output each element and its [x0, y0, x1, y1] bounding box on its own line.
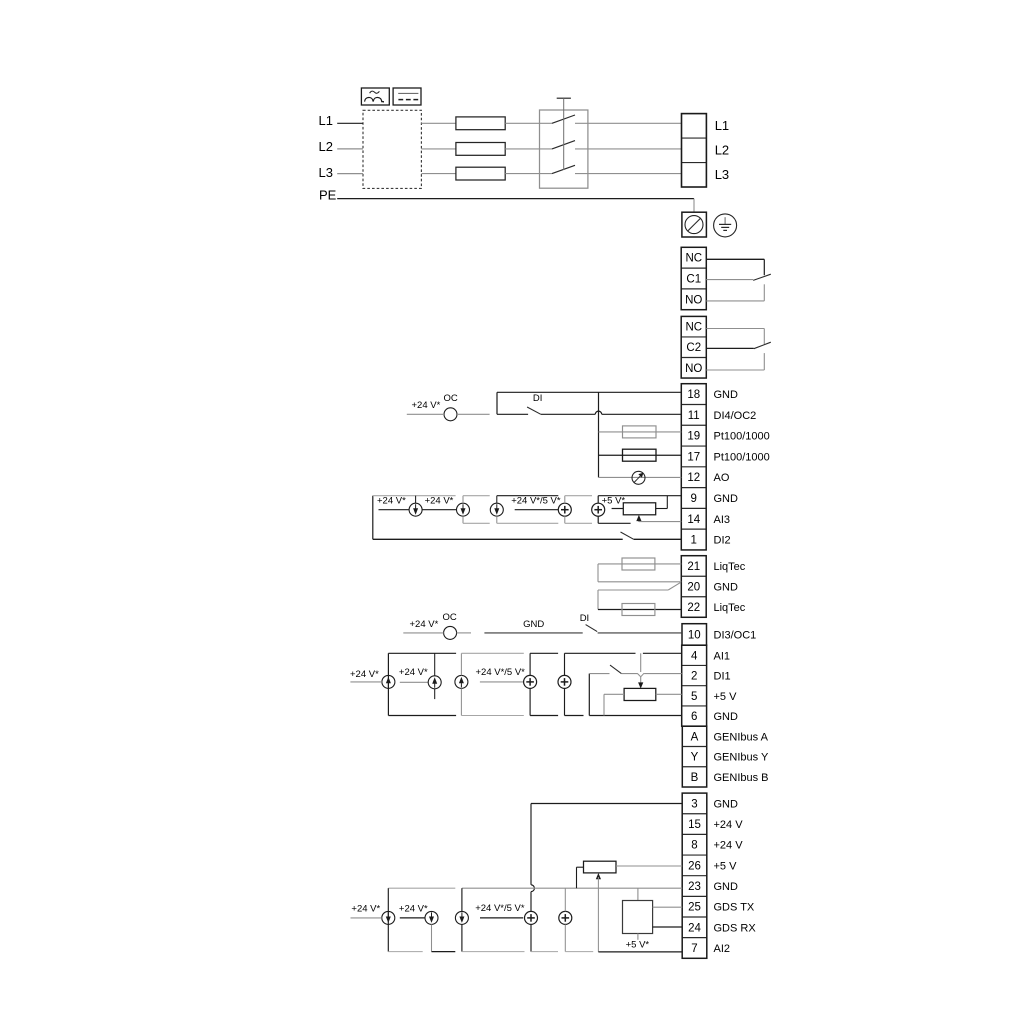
svg-text:AI1: AI1	[714, 650, 731, 662]
svg-text:L3: L3	[715, 167, 729, 182]
svg-text:11: 11	[688, 410, 700, 422]
svg-text:+5 V*: +5 V*	[626, 939, 650, 950]
svg-text:5: 5	[691, 691, 697, 703]
svg-text:DI4/OC2: DI4/OC2	[714, 410, 757, 422]
svg-text:C1: C1	[686, 274, 701, 286]
svg-text:GND: GND	[714, 798, 739, 810]
svg-text:L2: L2	[715, 142, 729, 157]
svg-text:GENIbus Y: GENIbus Y	[714, 752, 769, 764]
svg-text:GND: GND	[714, 389, 739, 401]
svg-text:+24 V*/5 V*: +24 V*/5 V*	[476, 667, 526, 678]
svg-text:+24 V*: +24 V*	[377, 496, 406, 507]
svg-text:AO: AO	[714, 472, 730, 484]
svg-text:+24 V*: +24 V*	[399, 667, 428, 678]
svg-text:Pt100/1000: Pt100/1000	[714, 431, 770, 443]
svg-text:22: 22	[687, 602, 700, 614]
svg-text:GDS RX: GDS RX	[714, 922, 757, 934]
svg-text:17: 17	[687, 451, 700, 463]
svg-text:GENIbus B: GENIbus B	[714, 772, 769, 784]
svg-text:GND: GND	[714, 493, 739, 505]
svg-text:DI2: DI2	[714, 535, 731, 547]
svg-text:OC: OC	[443, 612, 457, 623]
svg-text:AI3: AI3	[714, 514, 731, 526]
svg-text:GDS TX: GDS TX	[714, 902, 755, 914]
svg-text:7: 7	[691, 943, 697, 955]
svg-text:+24 V*: +24 V*	[412, 400, 441, 411]
svg-text:+5 V: +5 V	[714, 860, 738, 872]
svg-text:+24 V*: +24 V*	[410, 619, 439, 630]
svg-text:LiqTec: LiqTec	[714, 561, 746, 573]
svg-text:NC: NC	[685, 253, 702, 265]
svg-text:L3: L3	[319, 165, 333, 180]
svg-text:8: 8	[691, 840, 697, 852]
svg-text:AI2: AI2	[714, 943, 731, 955]
svg-text:25: 25	[688, 902, 701, 914]
svg-text:NO: NO	[685, 294, 702, 306]
svg-text:+24 V*/5 V*: +24 V*/5 V*	[475, 903, 525, 914]
svg-text:DI: DI	[580, 613, 590, 624]
svg-text:GND: GND	[714, 881, 739, 893]
svg-text:+24 V*: +24 V*	[351, 903, 380, 914]
svg-text:DI1: DI1	[714, 671, 731, 683]
svg-text:12: 12	[687, 472, 700, 484]
svg-text:14: 14	[687, 514, 700, 526]
svg-text:L1: L1	[319, 113, 333, 128]
svg-text:+24 V*: +24 V*	[425, 496, 454, 507]
svg-text:+24 V*: +24 V*	[399, 903, 428, 914]
svg-text:18: 18	[687, 389, 700, 401]
svg-text:15: 15	[688, 819, 701, 831]
svg-text:NO: NO	[685, 363, 702, 375]
svg-text:24: 24	[688, 922, 701, 934]
svg-text:1: 1	[691, 535, 697, 547]
svg-text:2: 2	[691, 671, 697, 683]
svg-text:9: 9	[691, 493, 697, 505]
svg-text:4: 4	[691, 650, 698, 662]
svg-text:3: 3	[691, 798, 697, 810]
svg-text:Pt100/1000: Pt100/1000	[714, 451, 770, 463]
svg-text:NC: NC	[685, 322, 702, 334]
svg-text:+5 V: +5 V	[714, 691, 738, 703]
svg-text:OC: OC	[444, 393, 458, 404]
svg-text:+24 V: +24 V	[714, 819, 744, 831]
svg-text:A: A	[691, 731, 699, 743]
svg-text:+5 V*: +5 V*	[602, 495, 626, 506]
svg-text:21: 21	[687, 561, 700, 573]
svg-text:GND: GND	[714, 711, 739, 723]
svg-text:PE: PE	[319, 187, 337, 202]
svg-text:20: 20	[687, 581, 700, 593]
svg-text:6: 6	[691, 711, 697, 723]
svg-text:26: 26	[688, 860, 701, 872]
svg-text:LiqTec: LiqTec	[714, 602, 746, 614]
svg-text:+24 V: +24 V	[714, 840, 744, 852]
svg-text:C2: C2	[686, 342, 701, 354]
svg-text:L2: L2	[319, 139, 333, 154]
svg-text:L1: L1	[715, 118, 729, 133]
svg-text:GND: GND	[714, 581, 739, 593]
svg-text:+24 V*: +24 V*	[350, 669, 379, 680]
svg-text:GENIbus A: GENIbus A	[714, 731, 769, 743]
svg-text:GND: GND	[523, 619, 544, 630]
svg-text:19: 19	[687, 431, 700, 443]
svg-text:10: 10	[688, 629, 701, 641]
svg-text:DI: DI	[533, 393, 543, 404]
svg-text:Y: Y	[691, 752, 699, 764]
svg-text:DI3/OC1: DI3/OC1	[714, 629, 757, 641]
svg-text:+24 V*/5 V*: +24 V*/5 V*	[511, 496, 561, 507]
svg-text:B: B	[691, 772, 699, 784]
svg-text:23: 23	[688, 881, 701, 893]
